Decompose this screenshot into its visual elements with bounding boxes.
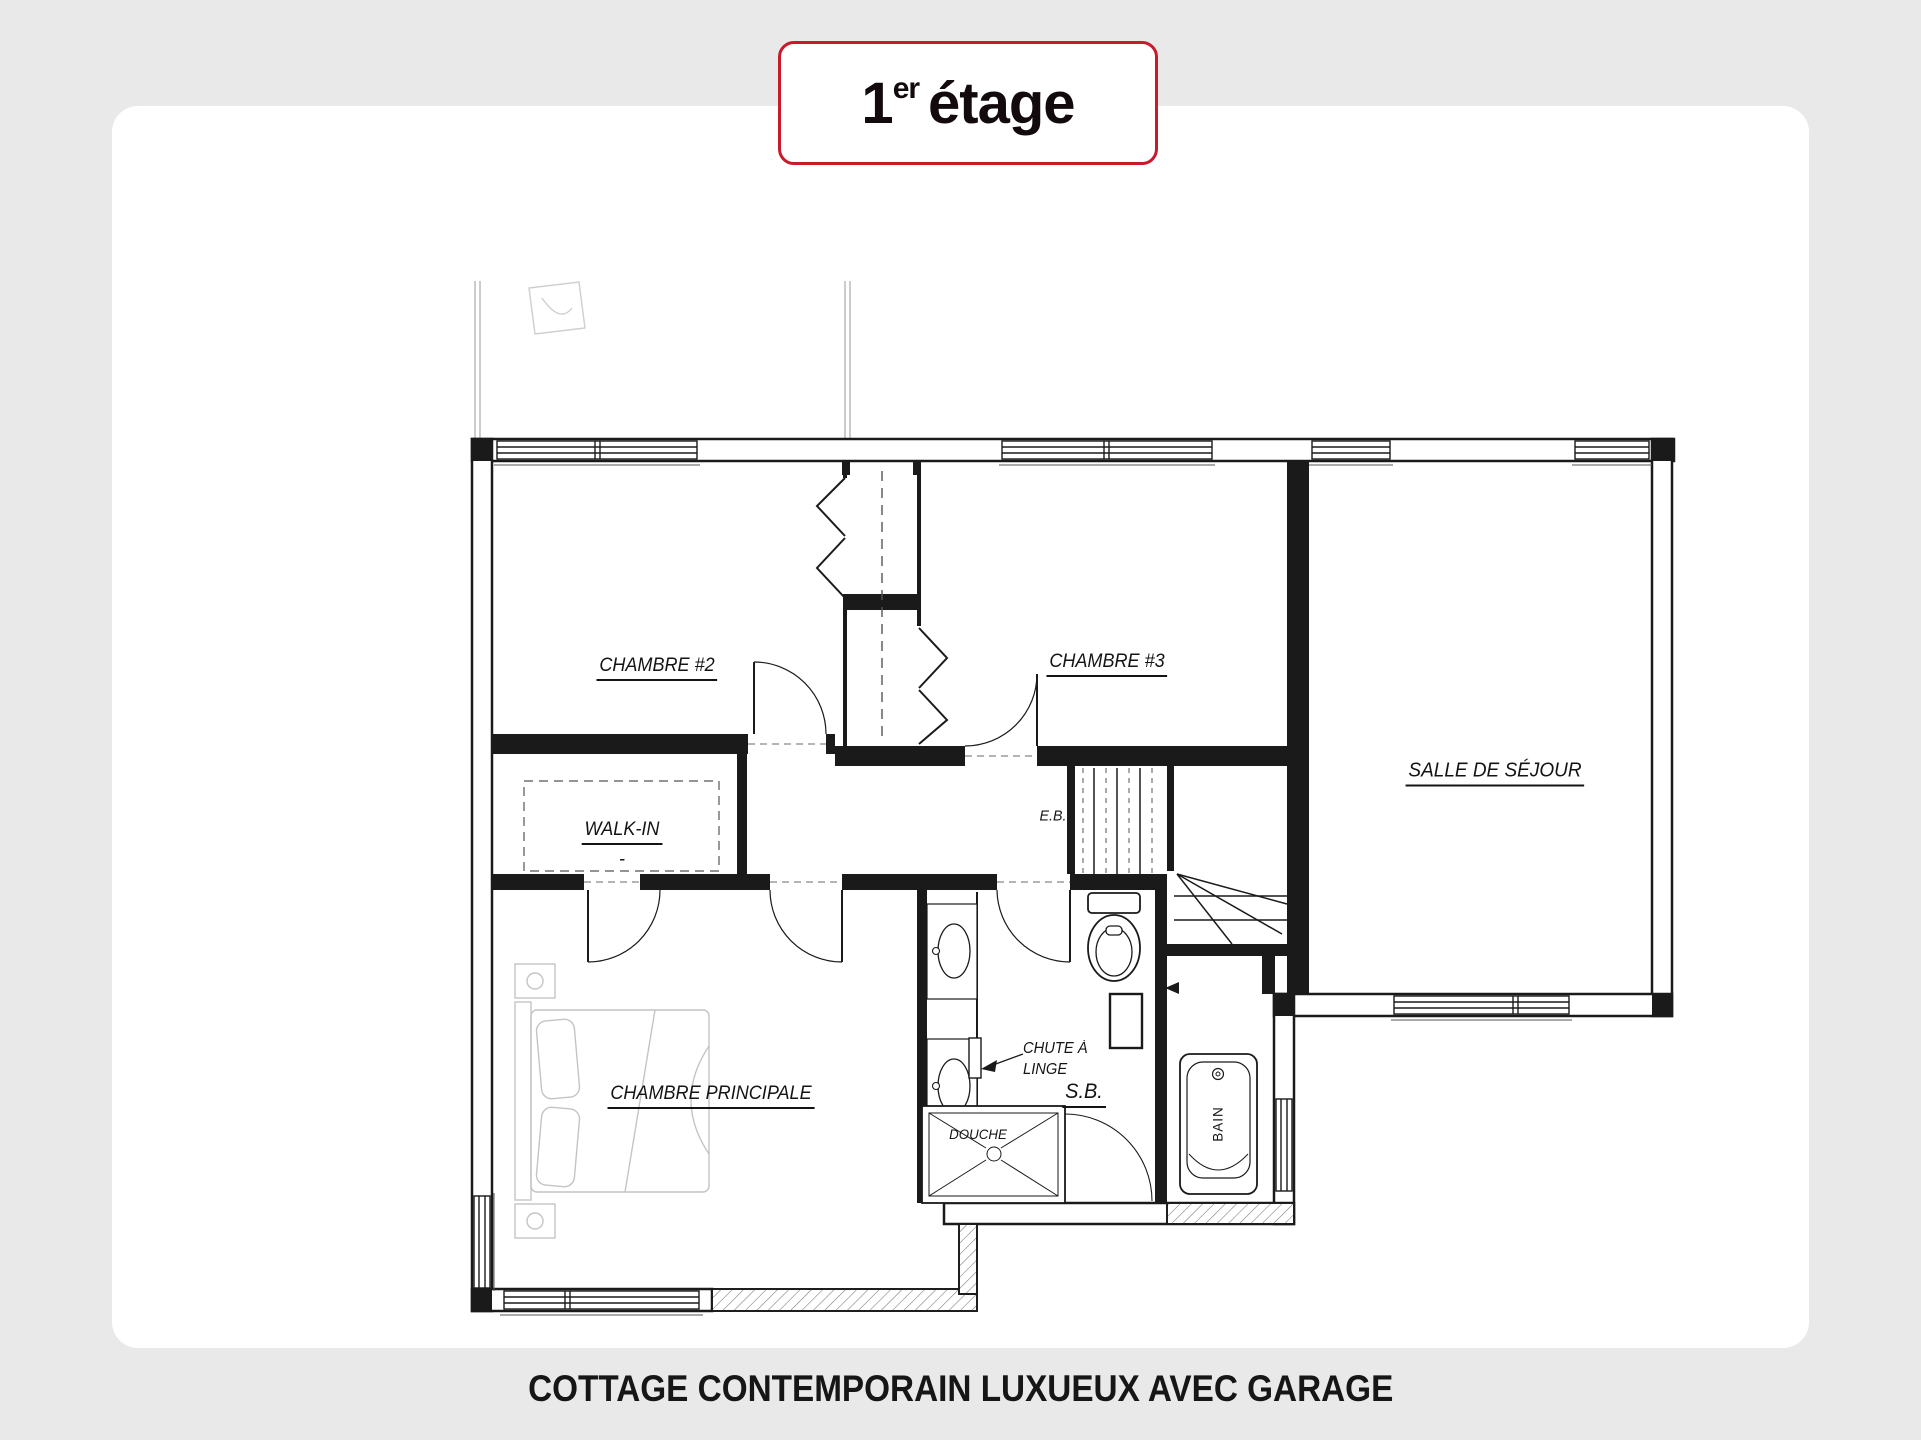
- room-label-walk-in: WALK-IN: [582, 819, 663, 845]
- decorative-sketch: [529, 282, 585, 334]
- room-label-chambre-3: CHAMBRE #3: [1046, 651, 1167, 677]
- chute-line-1: CHUTE À: [1023, 1038, 1088, 1059]
- caption: COTTAGE CONTEMPORAIN LUXUEUX AVEC GARAGE: [0, 1368, 1921, 1410]
- window-top-3: [1312, 441, 1390, 459]
- stair-direction-arrow: [1165, 982, 1179, 994]
- window-sejour-south: [1394, 996, 1569, 1014]
- room-label-sb: S.B.: [1062, 1080, 1105, 1108]
- door-chambre3: [965, 674, 1037, 746]
- title-badge: 1erétage: [778, 41, 1158, 165]
- double-vanity: [927, 892, 977, 1134]
- badge-word: étage: [928, 70, 1075, 137]
- chute-line-2: LINGE: [1023, 1059, 1088, 1080]
- window-top-1: [497, 441, 697, 459]
- toilet: [1088, 893, 1140, 981]
- label-chute-a-linge: CHUTE À LINGE: [1023, 1038, 1088, 1080]
- door-walkin: [588, 890, 660, 962]
- floor-plan-card: CHAMBRE #2 CHAMBRE #3 SALLE DE SÉJOUR WA…: [112, 106, 1809, 1348]
- door-principale: [770, 890, 842, 962]
- room-label-chambre-principale: CHAMBRE PRINCIPALE: [608, 1083, 815, 1109]
- chute-arrow: [981, 1060, 997, 1072]
- walk-in-dash: -: [619, 849, 625, 871]
- door-sb: [997, 890, 1070, 962]
- floor-plan-drawing: CHAMBRE #2 CHAMBRE #3 SALLE DE SÉJOUR WA…: [467, 276, 1687, 1366]
- room-label-salle-de-sejour: SALLE DE SÉJOUR: [1406, 760, 1585, 787]
- shower: [922, 1106, 1152, 1203]
- door-chambre2: [754, 662, 826, 734]
- page-background: CHAMBRE #2 CHAMBRE #3 SALLE DE SÉJOUR WA…: [0, 0, 1921, 1440]
- label-eb: E.B.: [1040, 808, 1067, 825]
- caption-text: COTTAGE CONTEMPORAIN LUXUEUX AVEC GARAGE: [528, 1368, 1393, 1410]
- room-label-chambre-2: CHAMBRE #2: [596, 655, 717, 681]
- window-top-2: [1002, 441, 1212, 459]
- doors: [584, 662, 1070, 962]
- window-top-4: [1575, 441, 1649, 459]
- label-bain: BAIN: [1211, 1106, 1226, 1142]
- window-principale-south: [504, 1291, 699, 1309]
- label-douche: DOUCHE: [949, 1126, 1007, 1142]
- badge-number: 1: [861, 70, 892, 137]
- window-bath: [1276, 1099, 1292, 1191]
- door-thresholds: [584, 744, 1070, 882]
- window-left-wall: [474, 1196, 490, 1288]
